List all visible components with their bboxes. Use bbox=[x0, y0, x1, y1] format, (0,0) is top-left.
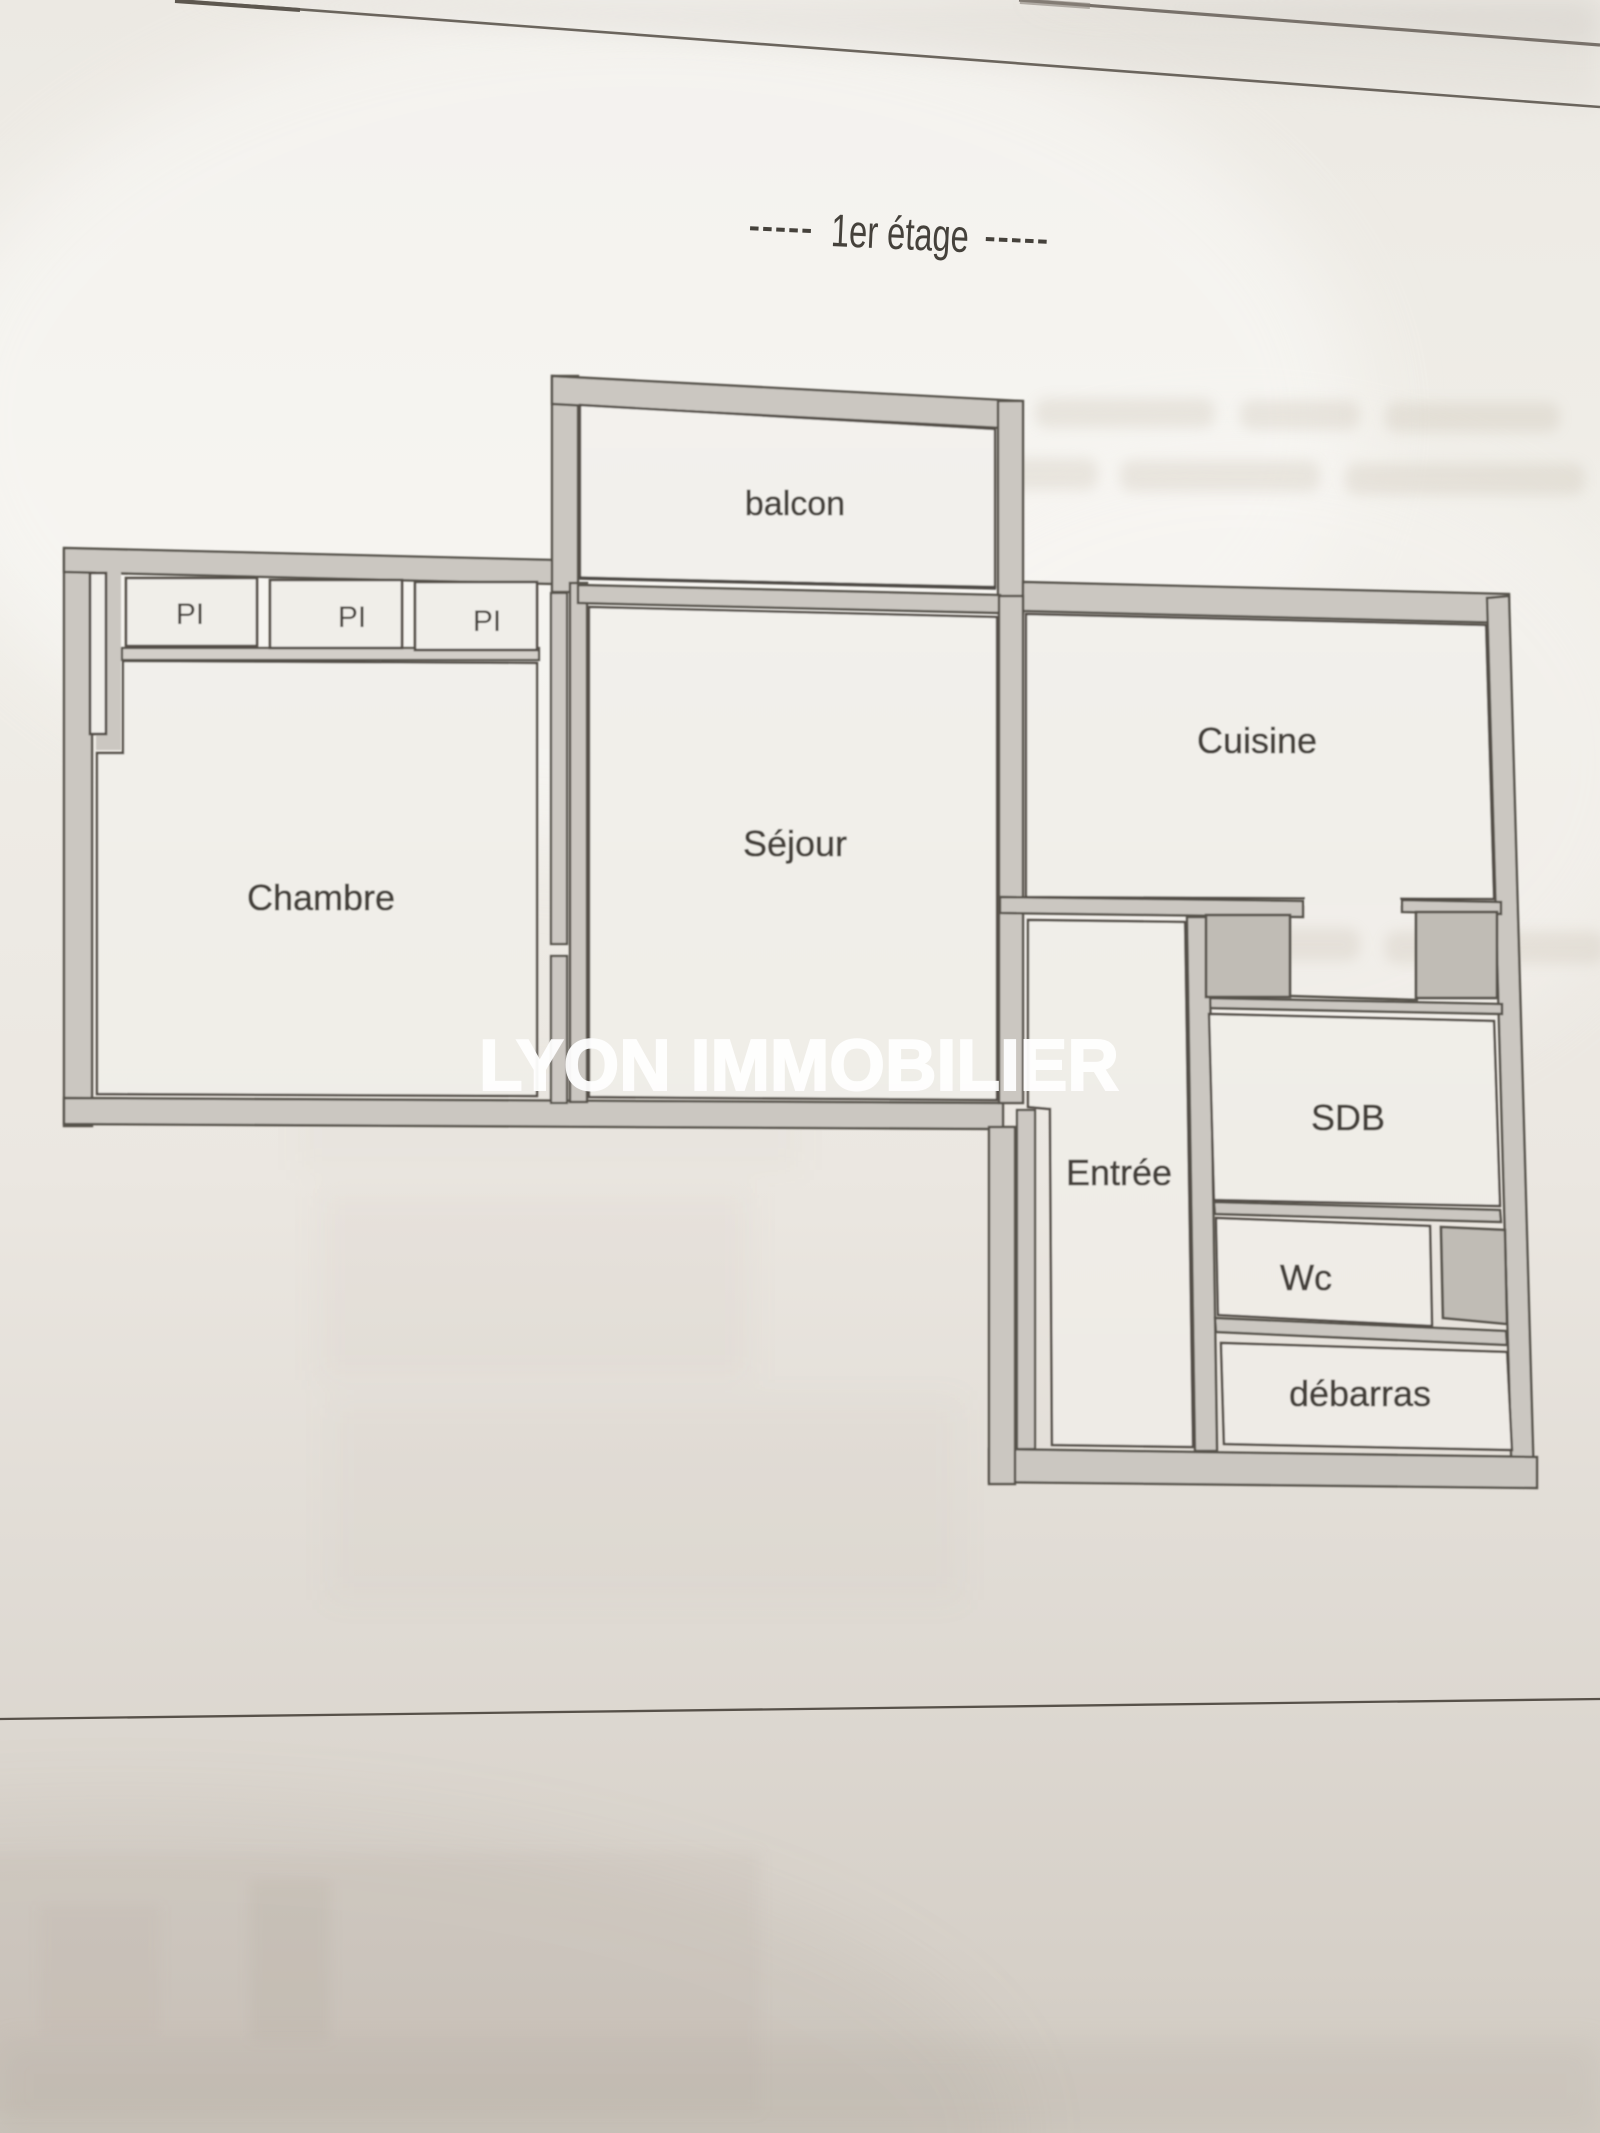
svg-text:Séjour: Séjour bbox=[743, 823, 847, 864]
svg-text:SDB: SDB bbox=[1311, 1097, 1385, 1138]
svg-text:Entrée: Entrée bbox=[1066, 1152, 1172, 1193]
svg-text:débarras: débarras bbox=[1289, 1373, 1431, 1414]
svg-text:PI: PI bbox=[176, 598, 204, 631]
svg-text:balcon: balcon bbox=[745, 485, 845, 523]
svg-text:PI: PI bbox=[338, 601, 366, 634]
svg-text:Cuisine: Cuisine bbox=[1197, 720, 1317, 761]
svg-text:Wc: Wc bbox=[1280, 1257, 1332, 1298]
svg-text:1er étage: 1er étage bbox=[830, 204, 970, 262]
svg-text:LYON IMMOBILIER: LYON IMMOBILIER bbox=[479, 1026, 1119, 1106]
svg-text:PI: PI bbox=[473, 605, 501, 638]
svg-text:Chambre: Chambre bbox=[247, 877, 395, 918]
